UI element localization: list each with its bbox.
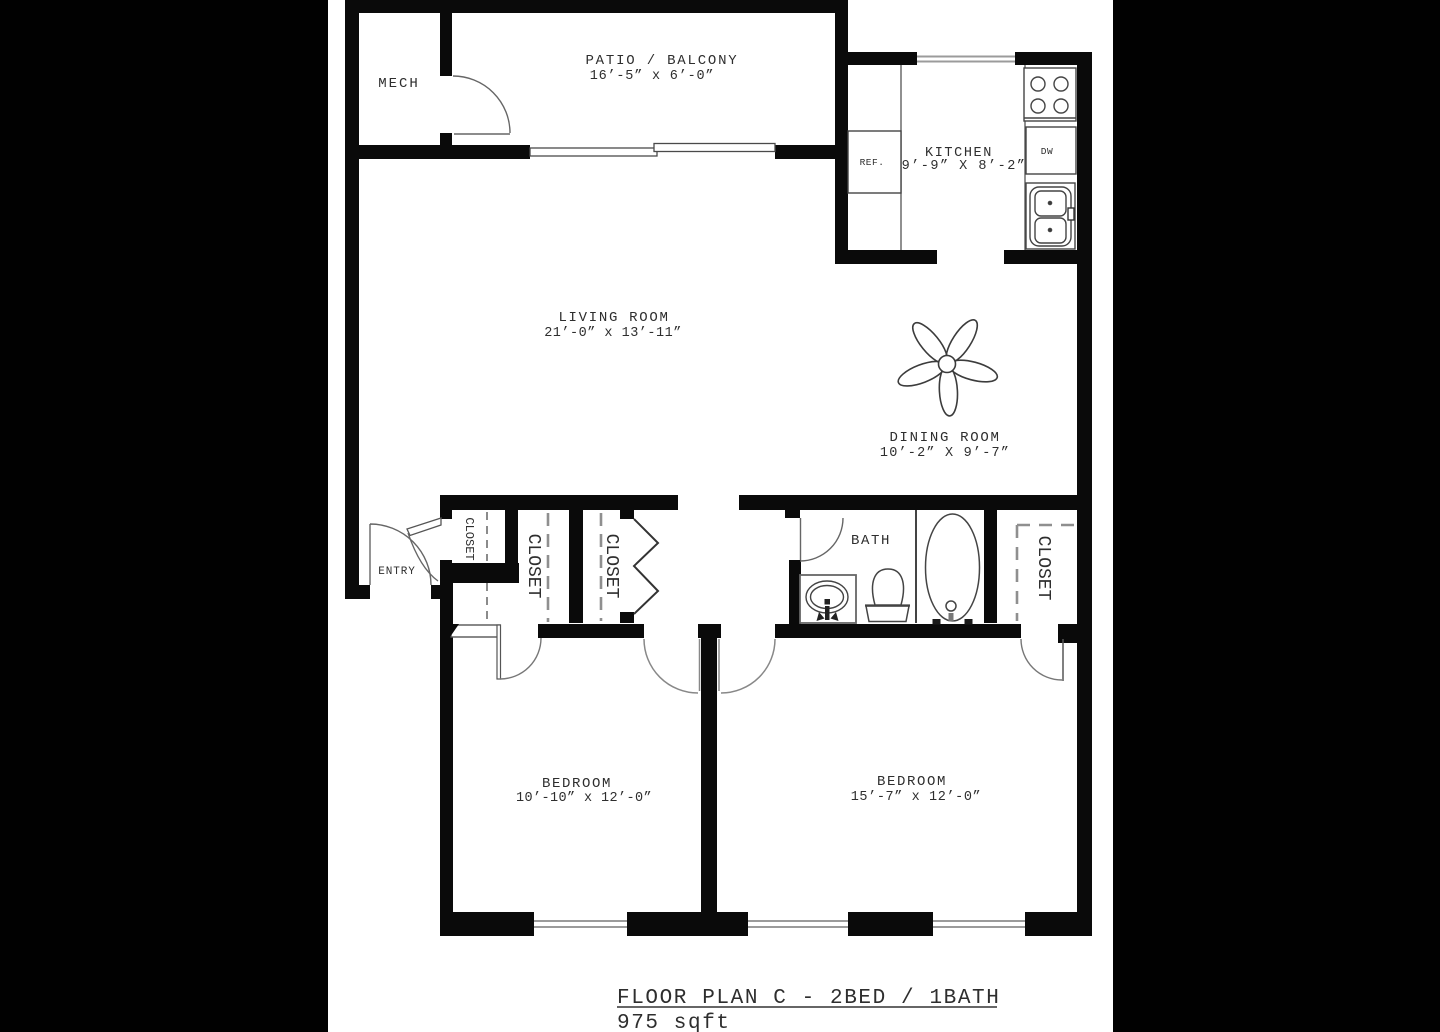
svg-text:15’-7” x 12’-0”: 15’-7” x 12’-0” bbox=[851, 790, 982, 805]
svg-text:MECH: MECH bbox=[378, 76, 420, 92]
svg-text:9’-9” X 8’-2”: 9’-9” X 8’-2” bbox=[902, 159, 1027, 174]
svg-text:DINING ROOM: DINING ROOM bbox=[889, 430, 1000, 446]
svg-text:LIVING ROOM: LIVING ROOM bbox=[558, 310, 669, 326]
svg-text:16’-5” x 6’-0”: 16’-5” x 6’-0” bbox=[590, 69, 715, 84]
svg-text:CLOSET: CLOSET bbox=[601, 534, 621, 599]
svg-text:10’-2” X 9’-7”: 10’-2” X 9’-7” bbox=[880, 446, 1010, 461]
svg-text:BEDROOM: BEDROOM bbox=[877, 774, 947, 790]
svg-text:CLOSET: CLOSET bbox=[523, 534, 543, 599]
svg-text:CLOSET: CLOSET bbox=[462, 517, 476, 560]
svg-text:BATH: BATH bbox=[851, 533, 891, 549]
svg-text:ENTRY: ENTRY bbox=[378, 566, 416, 578]
svg-text:BEDROOM: BEDROOM bbox=[542, 776, 612, 792]
svg-text:REF.: REF. bbox=[860, 157, 885, 168]
svg-text:975 sqft: 975 sqft bbox=[617, 1012, 731, 1032]
svg-text:10’-10” x 12’-0”: 10’-10” x 12’-0” bbox=[516, 791, 652, 806]
svg-text:PATIO / BALCONY: PATIO / BALCONY bbox=[585, 53, 738, 69]
svg-text:21’-0” x 13’-11”: 21’-0” x 13’-11” bbox=[544, 326, 682, 341]
svg-text:DW: DW bbox=[1041, 146, 1053, 157]
svg-text:CLOSET: CLOSET bbox=[1033, 536, 1053, 601]
